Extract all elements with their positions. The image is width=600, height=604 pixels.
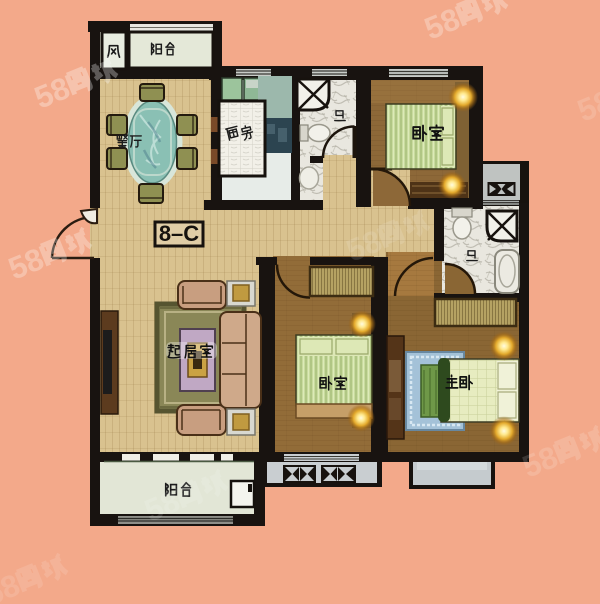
svg-text:8–C: 8–C: [159, 221, 199, 246]
